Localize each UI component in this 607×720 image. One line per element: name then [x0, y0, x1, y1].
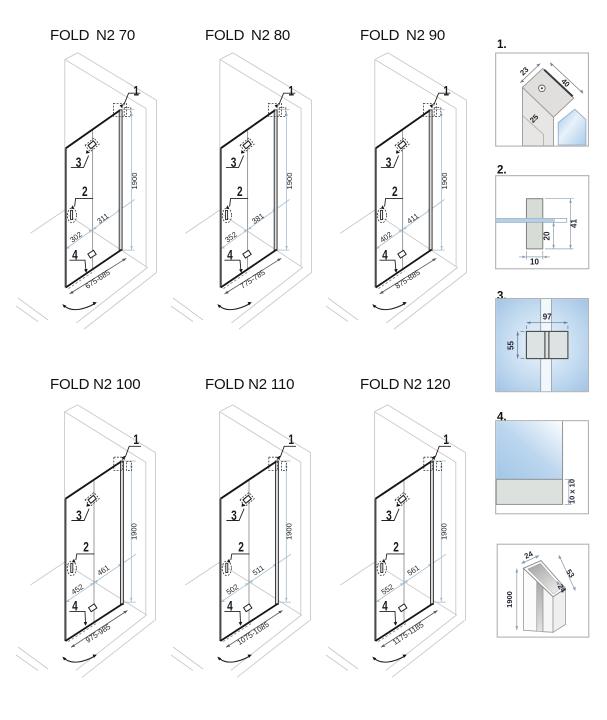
svg-text:511: 511	[251, 563, 266, 577]
svg-text:561: 561	[406, 563, 422, 578]
svg-text:352: 352	[223, 230, 239, 245]
svg-text:875-885: 875-885	[394, 268, 422, 291]
svg-text:381: 381	[250, 211, 266, 226]
svg-text:1.: 1.	[497, 39, 507, 51]
svg-text:461: 461	[96, 563, 112, 578]
svg-text:402: 402	[378, 230, 394, 245]
svg-text:55: 55	[506, 341, 515, 350]
svg-text:FOLD N2 100: FOLD N2 100	[50, 376, 140, 393]
svg-text:311: 311	[95, 211, 110, 225]
svg-text:775-785: 775-785	[239, 268, 267, 291]
svg-text:41: 41	[569, 219, 578, 228]
svg-text:FOLD N2 80: FOLD N2 80	[205, 27, 290, 44]
svg-text:502: 502	[225, 582, 241, 597]
svg-text:2.: 2.	[497, 165, 507, 177]
svg-text:675-685: 675-685	[84, 268, 112, 291]
svg-text:552: 552	[380, 582, 396, 597]
svg-text:FOLD N2 70: FOLD N2 70	[50, 27, 135, 44]
svg-text:1900: 1900	[505, 591, 514, 608]
svg-text:97: 97	[543, 313, 552, 322]
svg-text:411: 411	[405, 211, 420, 225]
svg-text:10: 10	[530, 258, 539, 267]
svg-text:20: 20	[542, 231, 551, 240]
svg-text:FOLD N2 120: FOLD N2 120	[360, 376, 450, 393]
svg-text:10 x 10: 10 x 10	[567, 479, 576, 504]
svg-text:FOLD N2 110: FOLD N2 110	[205, 376, 294, 393]
svg-text:452: 452	[70, 582, 86, 597]
svg-text:302: 302	[68, 230, 84, 245]
svg-text:FOLD N2 90: FOLD N2 90	[360, 27, 445, 44]
